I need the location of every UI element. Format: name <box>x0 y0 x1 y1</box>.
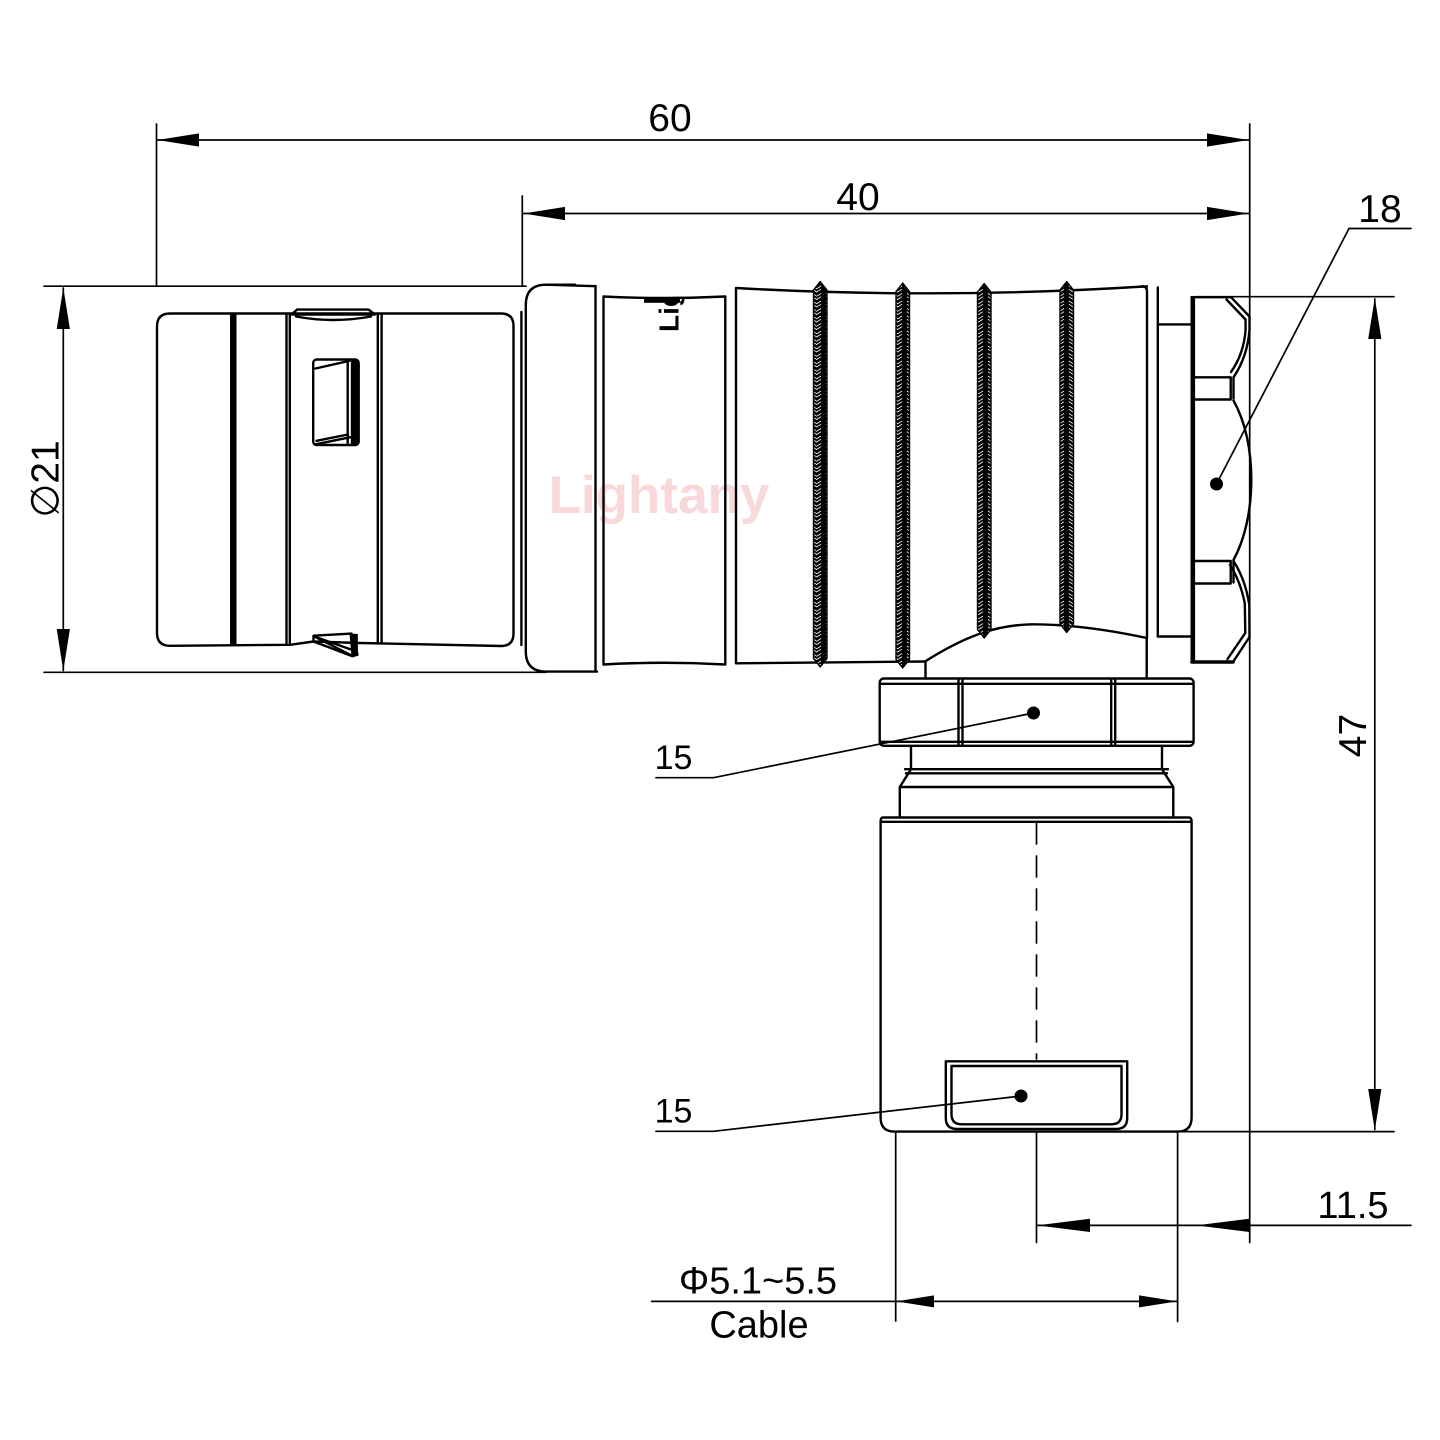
svg-text:60: 60 <box>648 97 691 140</box>
svg-text:11.5: 11.5 <box>1317 1185 1388 1227</box>
svg-text:18: 18 <box>1358 188 1401 231</box>
svg-text:47: 47 <box>1332 714 1375 757</box>
svg-text:Lig: Lig <box>654 290 685 332</box>
svg-text:15: 15 <box>655 739 693 777</box>
svg-text:∅21: ∅21 <box>25 440 68 517</box>
svg-text:15: 15 <box>655 1093 693 1131</box>
svg-text:40: 40 <box>836 176 879 219</box>
svg-text:Φ5.1~5.5: Φ5.1~5.5 <box>679 1261 837 1303</box>
svg-text:Cable: Cable <box>709 1305 808 1347</box>
